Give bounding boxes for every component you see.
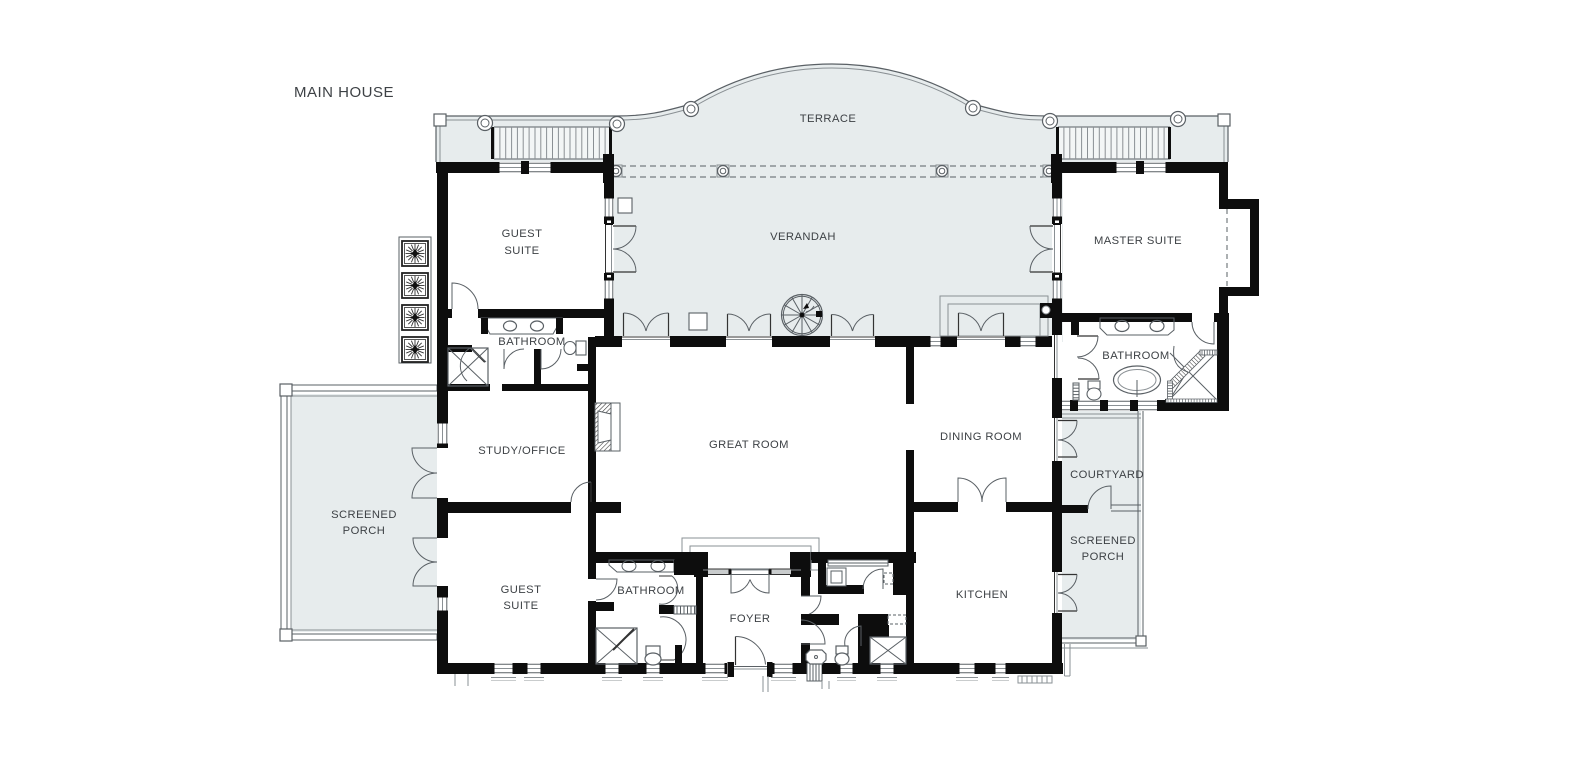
svg-text:GUEST: GUEST (501, 584, 542, 596)
svg-text:FOYER: FOYER (730, 613, 771, 625)
svg-text:BATHROOM: BATHROOM (1102, 350, 1169, 362)
svg-text:SUITE: SUITE (504, 245, 539, 257)
svg-text:BATHROOM: BATHROOM (498, 336, 565, 348)
svg-text:PORCH: PORCH (343, 525, 386, 537)
svg-text:SCREENED: SCREENED (331, 509, 397, 521)
svg-text:TERRACE: TERRACE (800, 113, 857, 125)
svg-text:COURTYARD: COURTYARD (1070, 469, 1144, 481)
svg-text:SUITE: SUITE (503, 600, 538, 612)
svg-text:VERANDAH: VERANDAH (770, 231, 836, 243)
svg-text:DINING ROOM: DINING ROOM (940, 431, 1022, 443)
svg-text:GREAT ROOM: GREAT ROOM (709, 439, 789, 451)
svg-text:MAIN HOUSE: MAIN HOUSE (294, 84, 394, 101)
svg-text:GUEST: GUEST (502, 228, 543, 240)
svg-text:BATHROOM: BATHROOM (617, 585, 684, 597)
svg-text:KITCHEN: KITCHEN (956, 589, 1008, 601)
svg-text:MASTER SUITE: MASTER SUITE (1094, 235, 1182, 247)
svg-text:SCREENED: SCREENED (1070, 535, 1136, 547)
svg-text:PORCH: PORCH (1082, 551, 1125, 563)
svg-text:STUDY/OFFICE: STUDY/OFFICE (478, 445, 565, 457)
